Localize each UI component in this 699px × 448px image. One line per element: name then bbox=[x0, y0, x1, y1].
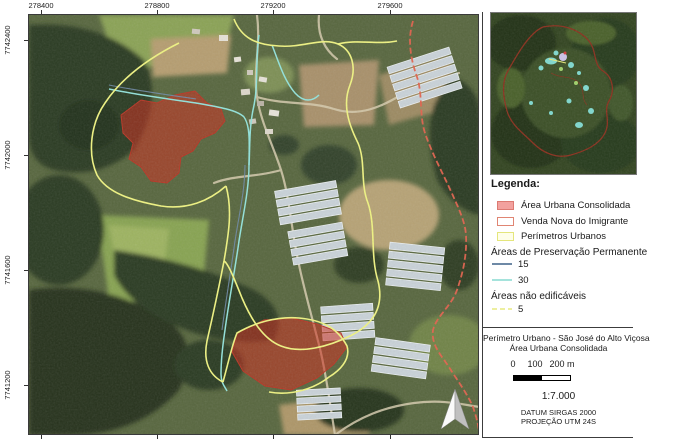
red-outline-swatch bbox=[497, 217, 514, 226]
aerial-imagery bbox=[29, 15, 479, 435]
axis-label-y1: 7742400 bbox=[3, 20, 13, 60]
legend-group-heading-app: Áreas de Preservação Permanente bbox=[491, 247, 647, 258]
legend-item-label: Venda Nova do Imigrante bbox=[521, 216, 628, 227]
axis-label-y4: 7741200 bbox=[3, 365, 13, 405]
axis-tick bbox=[157, 435, 158, 439]
legend-item-5: 5 bbox=[492, 303, 523, 315]
legend-item-app15: 15 bbox=[492, 258, 529, 270]
axis-tick bbox=[273, 435, 274, 439]
legend-item-app30: 30 bbox=[492, 274, 529, 286]
projection-text: PROJEÇÃO UTM 24S bbox=[483, 417, 634, 426]
legend-group-heading-nao-edificaveis: Áreas não edificáveis bbox=[491, 291, 586, 302]
pink-fill-swatch bbox=[497, 201, 514, 210]
scalebar-label-100: 100 bbox=[527, 359, 542, 369]
legend-item-urban-consolidated: Área Urbana Consolidada bbox=[497, 199, 630, 211]
scalebar-label-200: 200 m bbox=[549, 359, 574, 369]
axis-tick bbox=[41, 435, 42, 439]
overview-imagery bbox=[491, 13, 636, 174]
axis-tick bbox=[390, 435, 391, 439]
axis-label-y3: 7741600 bbox=[3, 250, 13, 290]
title-block: Perímetro Urbano - São José do Alto Viço… bbox=[482, 327, 633, 438]
axis-label-y2: 7742000 bbox=[3, 135, 13, 175]
axis-label-x3: 279200 bbox=[260, 1, 285, 10]
overview-inset-map bbox=[490, 12, 637, 175]
yellow-outline-swatch bbox=[497, 232, 514, 241]
legend-item-label: Área Urbana Consolidada bbox=[521, 200, 630, 211]
scale-ratio: 1:7.000 bbox=[483, 391, 634, 402]
scalebar bbox=[513, 375, 571, 381]
scalebar-label-0: 0 bbox=[510, 359, 515, 369]
axis-label-x2: 278800 bbox=[144, 1, 169, 10]
yellow-dashed-line-swatch bbox=[492, 308, 512, 310]
legend: Legenda: bbox=[491, 178, 691, 200]
legend-item-label: 30 bbox=[518, 275, 529, 286]
map-layout-page: 278400 278800 279200 279600 7742400 7742… bbox=[0, 0, 699, 448]
legend-item-venda-nova: Venda Nova do Imigrante bbox=[497, 215, 628, 227]
map-title-line1: Perímetro Urbano - São José do Alto Viço… bbox=[483, 333, 634, 343]
axis-label-x4: 279600 bbox=[377, 1, 402, 10]
map-title-line2: Área Urbana Consolidada bbox=[483, 343, 634, 353]
scalebar-fill bbox=[514, 376, 542, 380]
datum-text: DATUM SIRGAS 2000 bbox=[483, 408, 634, 417]
legend-item-label: 15 bbox=[518, 259, 529, 270]
blue-line-swatch bbox=[492, 263, 512, 265]
axis-label-x1: 278400 bbox=[28, 1, 53, 10]
cyan-line-swatch bbox=[492, 279, 512, 281]
legend-item-perimetros: Perímetros Urbanos bbox=[497, 230, 606, 242]
main-map bbox=[28, 14, 479, 435]
legend-item-label: Perímetros Urbanos bbox=[521, 231, 606, 242]
legend-item-label: 5 bbox=[518, 304, 523, 315]
legend-heading: Legenda: bbox=[491, 178, 691, 190]
